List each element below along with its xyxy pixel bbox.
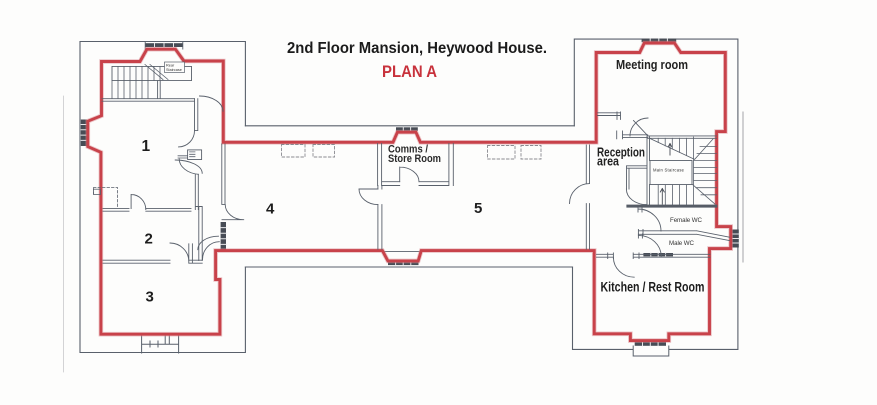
svg-text:Staircase: Staircase: [166, 68, 182, 72]
svg-text:Female WC: Female WC: [670, 217, 703, 224]
svg-text:Male WC: Male WC: [669, 240, 695, 247]
svg-text:Store Room: Store Room: [388, 153, 441, 165]
svg-text:area: area: [597, 155, 620, 169]
svg-text:4: 4: [266, 200, 275, 217]
svg-text:5: 5: [474, 200, 482, 217]
svg-text:2: 2: [145, 231, 153, 248]
svg-text:Kitchen / Rest Room: Kitchen / Rest Room: [601, 280, 705, 295]
svg-text:Meeting room: Meeting room: [616, 58, 688, 72]
svg-text:1: 1: [142, 138, 151, 155]
svg-text:2nd Floor Mansion, Heywood Hou: 2nd Floor Mansion, Heywood House.: [287, 40, 547, 57]
svg-text:PLAN A: PLAN A: [382, 62, 437, 81]
svg-text:Rear: Rear: [166, 64, 175, 68]
svg-text:Main Staircase: Main Staircase: [653, 168, 685, 173]
svg-text:3: 3: [146, 288, 154, 305]
